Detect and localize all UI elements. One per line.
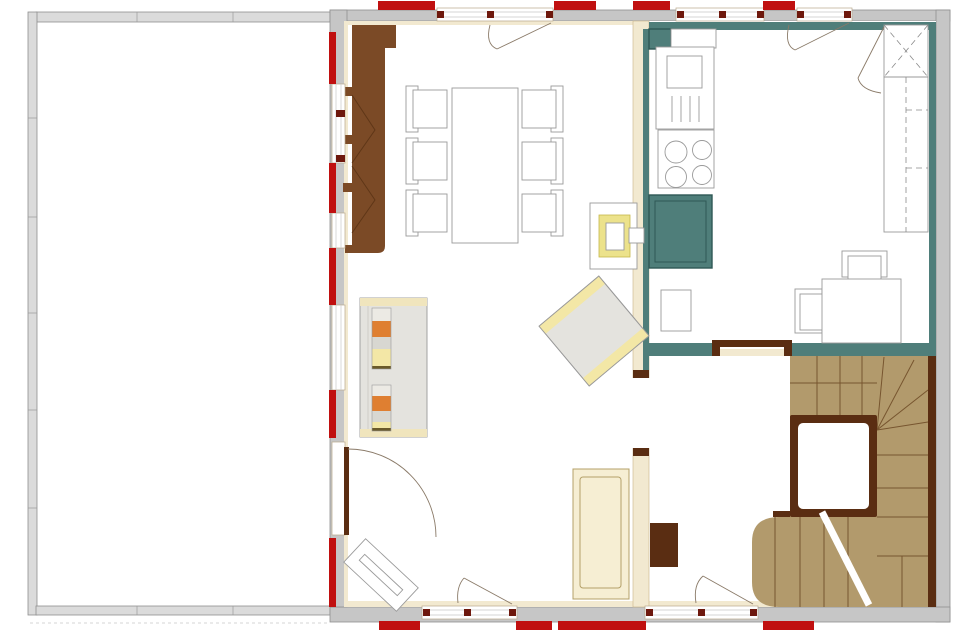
terrace-bottom-wall: [36, 606, 330, 615]
window-living-north: [437, 8, 553, 21]
living-hall-doorway: [631, 378, 651, 448]
door-bedroom-north: [797, 8, 852, 21]
east-wall: [936, 10, 950, 622]
entrance-door-south: [645, 606, 758, 619]
floor-plan: [0, 0, 960, 630]
window-west-1: [332, 84, 345, 163]
tiled-stove: [590, 203, 644, 269]
terrace-left-wall: [28, 12, 37, 615]
terrace-top-wall: [36, 12, 330, 22]
cooktop: [658, 130, 714, 188]
counter-top: [671, 29, 716, 48]
door-living-south: [422, 606, 517, 619]
oven-tower: [656, 47, 714, 129]
stair-side-trim: [928, 356, 936, 607]
stove-flue: [629, 228, 644, 243]
shelf-stack-2: [372, 385, 391, 431]
north-wall: [330, 10, 950, 21]
shelf-stack-1: [372, 308, 391, 369]
terrace-door-west: [332, 442, 349, 535]
desk-chair-seat: [848, 256, 881, 281]
dining-chairs-left: [406, 86, 447, 236]
stair-wall-stub: [773, 511, 790, 517]
side-chair-seat: [800, 294, 825, 330]
desk: [822, 279, 901, 343]
terrace-door-leaf: [344, 447, 349, 535]
window-west-3: [332, 305, 345, 390]
dishwasher: [661, 290, 691, 331]
teal-wall-bottom-left: [643, 343, 712, 356]
sideboard: [360, 298, 427, 437]
window-west-2: [332, 213, 345, 248]
doorway-jamb-top: [633, 370, 649, 378]
hall-cabinet: [650, 523, 678, 567]
dining-set: [406, 86, 563, 243]
window-kitchen-north: [676, 8, 764, 21]
partition-wall: [631, 21, 651, 607]
sink-counter: [649, 195, 712, 268]
partition-teal-face: [643, 29, 649, 370]
counter-corner: [649, 29, 671, 49]
doorway-jamb-bottom: [633, 448, 649, 456]
teal-face-right: [929, 30, 936, 356]
teal-wall-bottom-right: [790, 343, 936, 356]
sofa: [573, 469, 629, 599]
stair-void: [798, 423, 869, 509]
dining-table: [452, 88, 518, 243]
dining-chairs-right: [522, 86, 563, 236]
